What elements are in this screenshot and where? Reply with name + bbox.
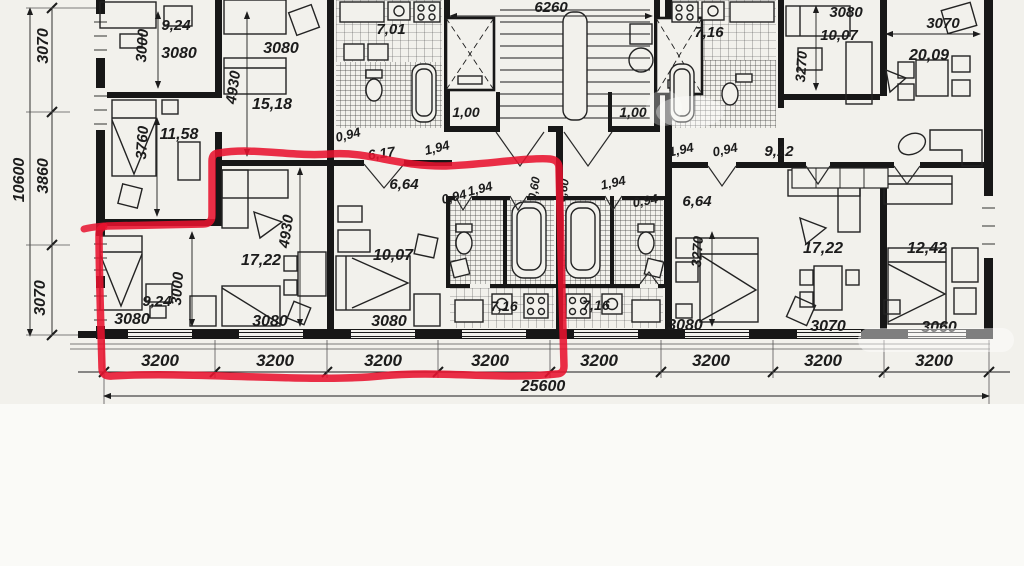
dim-label: 3000 <box>133 28 152 63</box>
area-label: 1,00 <box>452 104 479 120</box>
dim-label: 10600 <box>11 158 28 203</box>
area-label: 17,22 <box>803 240 843 257</box>
floor-plan-svg: 10600 3070 3860 3070 9,24 3080 3000 3760… <box>0 0 1024 566</box>
area-label: 9,24 <box>161 17 191 34</box>
area-label: 12,42 <box>907 240 947 257</box>
area-label: 7,16 <box>582 297 609 313</box>
area-label: 7,16 <box>694 24 724 41</box>
toilet-icon <box>366 79 382 101</box>
dim-label: 3080 <box>371 313 407 330</box>
area-label: 6,64 <box>682 193 712 210</box>
area-label: 7,16 <box>490 298 517 314</box>
dim-label: 25600 <box>520 378 566 395</box>
dim-label: 3070 <box>810 318 846 335</box>
dim-label: 3200 <box>580 351 618 370</box>
dim-label: 3200 <box>141 351 179 370</box>
dim-label: 3270 <box>688 235 706 267</box>
area-label: 17,22 <box>241 252 281 269</box>
dim-label: 3080 <box>667 317 703 334</box>
area-label: 9,24 <box>142 293 172 310</box>
area-label: 6,64 <box>389 176 419 193</box>
area-label: 15,18 <box>252 96 292 113</box>
dim-label: 3080 <box>829 4 863 21</box>
dim-label: 6260 <box>534 0 568 16</box>
area-label: 9,12 <box>764 143 794 160</box>
dim-label: 3200 <box>804 351 842 370</box>
dim-label: 3270 <box>792 50 810 82</box>
dim-label: 3760 <box>133 125 152 160</box>
dim-label: 3080 <box>114 311 150 328</box>
paper-blank-area <box>0 404 1024 566</box>
area-label: 7,01 <box>376 21 405 38</box>
dim-label: 3070 <box>926 15 960 32</box>
toilet-icon <box>722 83 738 105</box>
area-label: 10,07 <box>820 27 858 44</box>
toilet-icon <box>456 224 472 232</box>
dim-label: 3200 <box>364 351 402 370</box>
stove-icon <box>524 294 548 318</box>
dim-label: 3200 <box>471 351 509 370</box>
dim-label: 3070 <box>32 280 49 316</box>
area-label: 1,00 <box>619 104 646 120</box>
dim-label: 3080 <box>252 313 288 330</box>
dim-label: 3860 <box>35 158 52 194</box>
dim-label: 3200 <box>256 351 294 370</box>
dim-label: 3080 <box>161 45 197 62</box>
dim-label: 3200 <box>692 351 730 370</box>
toilet-icon <box>638 232 654 254</box>
dim-label: 3070 <box>35 28 52 64</box>
area-label: 20,09 <box>908 47 949 64</box>
area-label: 10,07 <box>373 247 414 264</box>
dim-label: 3080 <box>263 40 299 57</box>
area-label: 11,58 <box>160 126 199 143</box>
floor-plan-scan: 10600 3070 3860 3070 9,24 3080 3000 3760… <box>0 0 1024 566</box>
dim-label: 3200 <box>915 351 953 370</box>
